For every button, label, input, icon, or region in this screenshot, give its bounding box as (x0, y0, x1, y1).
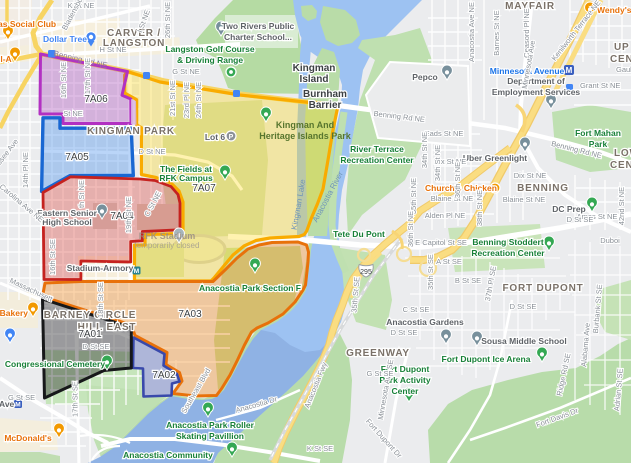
svg-text:M: M (15, 402, 20, 409)
svg-text:E Capitol St SE: E Capitol St SE (415, 238, 467, 247)
svg-text:BARNEY CIRCLE: BARNEY CIRCLE (44, 310, 136, 321)
svg-text:24th St NE: 24th St NE (194, 82, 203, 118)
svg-text:McDonald's: McDonald's (4, 433, 52, 443)
svg-text:Two Rivers Public: Two Rivers Public (222, 21, 295, 31)
svg-text:Benning Stoddert: Benning Stoddert (472, 237, 543, 247)
svg-text:P: P (229, 134, 234, 141)
svg-text:A St SE: A St SE (436, 257, 462, 266)
svg-text:21st St NE: 21st St NE (168, 80, 177, 116)
svg-text:23rd Pl NE: 23rd Pl NE (182, 82, 191, 118)
svg-text:Congressional Cemetery: Congressional Cemetery (5, 359, 105, 369)
svg-text:G St SE: G St SE (8, 393, 35, 402)
svg-text:35th St NE: 35th St NE (409, 178, 418, 214)
svg-text:16th St SE: 16th St SE (48, 239, 57, 275)
svg-text:7A03: 7A03 (178, 309, 202, 320)
svg-text:D St NE: D St NE (138, 147, 165, 156)
svg-text:Barrier: Barrier (309, 100, 342, 111)
svg-text:UP: UP (614, 42, 630, 53)
svg-text:th St NE: th St NE (77, 180, 86, 208)
svg-text:M: M (134, 268, 139, 275)
svg-text:Burnham: Burnham (303, 89, 347, 100)
svg-text:Fort Mahan: Fort Mahan (575, 128, 621, 138)
svg-text:Fort Dupont Ice Arena: Fort Dupont Ice Arena (442, 354, 531, 364)
svg-text:Wendy's: Wendy's (597, 5, 631, 15)
svg-text:295: 295 (360, 269, 372, 276)
svg-text:H St NE: H St NE (99, 45, 126, 54)
svg-text:Heritage Islands Park: Heritage Islands Park (259, 131, 352, 141)
svg-text:16th St NE: 16th St NE (59, 62, 68, 98)
svg-text:36th St NE: 36th St NE (453, 162, 462, 198)
svg-text:Uber Greenlight: Uber Greenlight (463, 153, 527, 163)
svg-text:CENTR: CENTR (610, 160, 631, 171)
svg-text:Blaine St NE: Blaine St NE (503, 195, 546, 204)
svg-text:D St SE: D St SE (83, 342, 110, 351)
svg-text:Barnes St NE: Barnes St NE (492, 10, 501, 55)
svg-text:ll-A: ll-A (0, 54, 12, 64)
svg-text:Eads St NE: Eads St NE (425, 129, 464, 138)
svg-text:7A02: 7A02 (152, 370, 176, 381)
svg-text:Recreation Center: Recreation Center (340, 155, 414, 165)
svg-text:Duboi: Duboi (600, 236, 620, 245)
svg-text:17th St NE: 17th St NE (83, 58, 92, 94)
svg-text:17th St SE: 17th St SE (71, 381, 80, 417)
svg-text:River Terrace: River Terrace (350, 144, 404, 154)
svg-text:19th St NE: 19th St NE (124, 197, 133, 233)
svg-text:KINGMAN PARK: KINGMAN PARK (87, 126, 175, 137)
svg-text:26th St NE: 26th St NE (163, 2, 172, 38)
svg-text:Lot 6: Lot 6 (205, 132, 226, 142)
svg-text:42nd St NE: 42nd St NE (617, 187, 626, 225)
svg-text:Island: Island (300, 74, 329, 85)
svg-text:Anacostia Community: Anacostia Community (123, 450, 213, 460)
svg-text:High School: High School (42, 217, 92, 227)
svg-text:34th St NE: 34th St NE (420, 132, 429, 168)
svg-text:Gault Pl NE: Gault Pl NE (616, 65, 631, 74)
svg-text:Stadium-Armory: Stadium-Armory (67, 263, 134, 273)
svg-text:Tete Du Pont: Tete Du Pont (333, 229, 385, 239)
svg-text:38th St NE: 38th St NE (475, 190, 484, 226)
svg-text:Skating Pavillion: Skating Pavillion (176, 431, 244, 441)
svg-text:RFK Stadium: RFK Stadium (139, 231, 196, 241)
svg-text:D St SE: D St SE (391, 328, 418, 337)
svg-text:Blaine St NE: Blaine St NE (431, 194, 474, 203)
svg-text:Grant St NE: Grant St NE (580, 81, 620, 90)
svg-text:& Driving Range: & Driving Range (177, 55, 243, 65)
svg-text:Pepco: Pepco (412, 72, 438, 82)
svg-text:Langston Golf Course: Langston Golf Course (165, 44, 255, 54)
svg-text:B St SE: B St SE (455, 276, 481, 285)
svg-text:Kingman: Kingman (293, 63, 336, 74)
svg-text:FORT DUPONT: FORT DUPONT (502, 283, 583, 294)
svg-text:as Social Club: as Social Club (0, 19, 56, 29)
svg-text:LOW: LOW (614, 148, 631, 159)
svg-text:Recreation Center: Recreation Center (471, 248, 545, 258)
svg-text:G St SE: G St SE (366, 369, 393, 378)
svg-text:St NE: St NE (63, 109, 83, 118)
svg-text:D St SE: D St SE (567, 215, 594, 224)
svg-text:Charter School...: Charter School... (224, 32, 292, 42)
svg-text:K St SE: K St SE (307, 444, 333, 453)
svg-text:l Bakery: l Bakery (0, 308, 28, 318)
svg-text:Department of: Department of (507, 76, 565, 86)
svg-text:7A05: 7A05 (65, 152, 89, 163)
svg-text:35th St SE: 35th St SE (426, 254, 435, 290)
svg-text:34th St NE: 34th St NE (433, 145, 442, 181)
svg-text:Employment Services: Employment Services (492, 87, 581, 97)
svg-text:BENNING: BENNING (517, 183, 569, 194)
svg-text:Anacostia Park Roller: Anacostia Park Roller (166, 420, 255, 430)
svg-text:RFK Campus: RFK Campus (159, 173, 213, 183)
svg-text:7A06: 7A06 (84, 94, 108, 105)
svg-text:7A07: 7A07 (192, 183, 216, 194)
svg-text:Anacostia Gardens: Anacostia Gardens (386, 317, 464, 327)
svg-text:Anacostia Park Section F: Anacostia Park Section F (199, 283, 301, 293)
svg-text:18th St SE: 18th St SE (96, 282, 105, 318)
svg-text:Kingman And: Kingman And (276, 120, 334, 130)
svg-text:Park: Park (589, 139, 608, 149)
svg-text:Dix St NE: Dix St NE (514, 171, 547, 180)
svg-text:Sousa Middle School: Sousa Middle School (481, 336, 566, 346)
svg-text:G St NE: G St NE (172, 67, 200, 76)
svg-text:14th Pl NE: 14th Pl NE (21, 152, 30, 188)
svg-text:GREENWAY: GREENWAY (346, 348, 410, 359)
svg-text:36th St NE: 36th St NE (406, 211, 415, 247)
svg-text:CENT: CENT (610, 54, 631, 65)
svg-text:Alden Pl NE: Alden Pl NE (425, 211, 465, 220)
svg-text:M: M (566, 66, 573, 75)
svg-text:Dollar Tree: Dollar Tree (43, 34, 87, 44)
svg-text:Center: Center (392, 386, 420, 396)
svg-text:C St SE: C St SE (403, 305, 430, 314)
svg-text:temporarily closed: temporarily closed (135, 241, 200, 250)
svg-text:Anacostia Ave NE: Anacostia Ave NE (467, 2, 476, 62)
svg-text:7A01: 7A01 (78, 329, 102, 340)
svg-text:D St SE: D St SE (510, 302, 537, 311)
